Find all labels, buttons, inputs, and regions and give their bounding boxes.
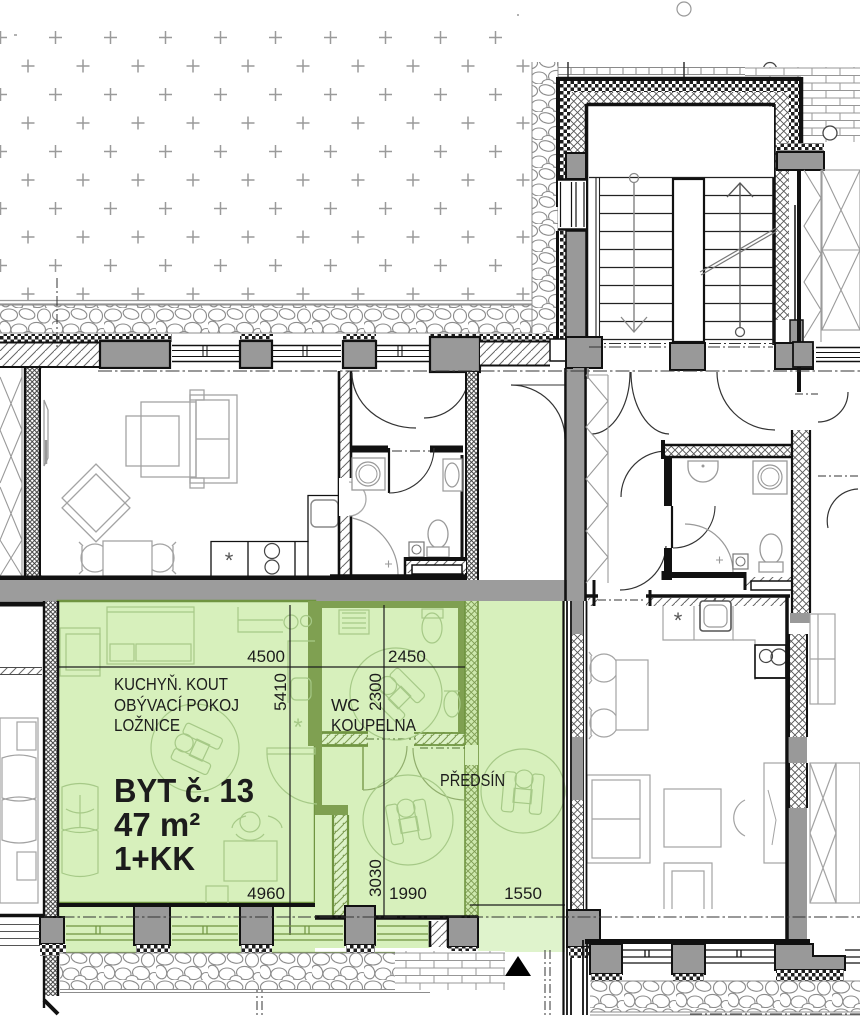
svg-text:*: *: [674, 608, 683, 633]
svg-text:LOŽNICE: LOŽNICE: [114, 715, 180, 735]
svg-text:KUCHYŇ. KOUT: KUCHYŇ. KOUT: [114, 674, 228, 694]
svg-text:2450: 2450: [388, 647, 426, 666]
svg-text:5410: 5410: [271, 673, 290, 711]
svg-text:OBÝVACÍ POKOJ: OBÝVACÍ POKOJ: [114, 695, 239, 715]
svg-text:*: *: [225, 548, 234, 573]
svg-text:1550: 1550: [504, 884, 542, 903]
svg-text:PŘEDSÍN: PŘEDSÍN: [440, 770, 505, 790]
svg-text:3030: 3030: [366, 859, 385, 897]
svg-text:KOUPELNA: KOUPELNA: [331, 715, 416, 735]
svg-text:*: *: [293, 714, 302, 741]
svg-text:4500: 4500: [247, 647, 285, 666]
svg-text:47 m²: 47 m²: [114, 806, 200, 843]
svg-text:1+KK: 1+KK: [114, 840, 195, 877]
svg-text:4960: 4960: [247, 884, 285, 903]
svg-text:BYT č. 13: BYT č. 13: [114, 772, 254, 809]
svg-text:2300: 2300: [366, 673, 385, 711]
svg-text:WC: WC: [331, 695, 359, 715]
svg-text:1990: 1990: [389, 884, 427, 903]
